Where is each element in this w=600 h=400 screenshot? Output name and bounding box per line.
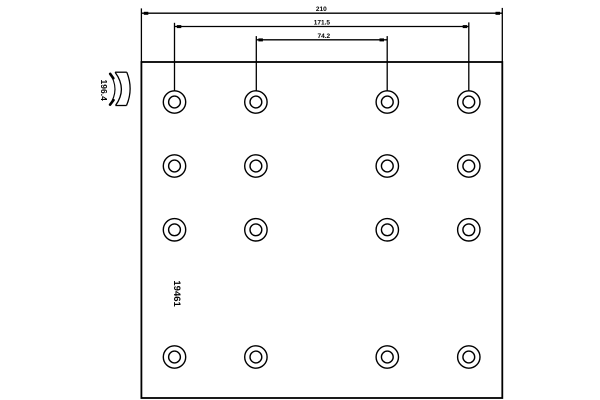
svg-text:171.5: 171.5 bbox=[314, 20, 331, 27]
svg-text:210: 210 bbox=[316, 6, 327, 13]
svg-text:19461: 19461 bbox=[171, 280, 182, 307]
svg-text:74.2: 74.2 bbox=[317, 33, 330, 40]
svg-text:196.4: 196.4 bbox=[99, 80, 109, 102]
